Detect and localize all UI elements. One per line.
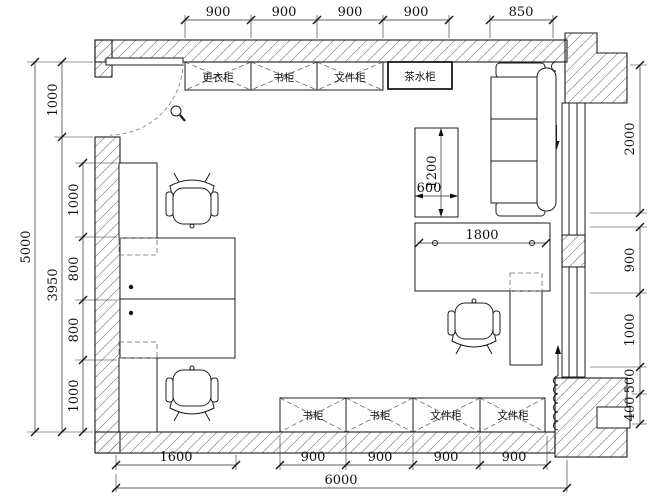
desk-grommet xyxy=(129,285,133,289)
desk-length-dim: 1800 xyxy=(465,228,498,243)
left-desk-cluster xyxy=(119,163,235,432)
dim-top-1: 900 xyxy=(206,5,231,20)
desk-return-cabinet-top xyxy=(119,163,157,238)
dim-left-inner-4: 1000 xyxy=(67,379,82,412)
window-lower xyxy=(562,267,585,377)
floor-plan-canvas: 更衣柜 书柜 文件柜 茶水柜 书柜 书柜 文件柜 文件柜 xyxy=(0,0,667,503)
file-cabinet-2-label: 文件柜 xyxy=(497,409,529,422)
desk-return-cabinet-right xyxy=(510,291,542,365)
dim-left-mid-2: 3950 xyxy=(46,268,61,301)
desk-return-cabinet-bottom xyxy=(119,358,157,432)
office-chair xyxy=(166,173,218,228)
desk-grommet xyxy=(129,311,133,315)
dim-bottom-4: 900 xyxy=(434,450,459,465)
dim-top-right: 850 xyxy=(509,5,534,20)
bookcase-cabinet-top-label: 书柜 xyxy=(274,71,295,84)
side-cabinet: 1200 600 xyxy=(415,128,458,217)
door xyxy=(106,58,185,135)
cabinet-width-dim: 600 xyxy=(417,181,442,196)
window-upper xyxy=(562,103,585,235)
top-cabinet-row: 更衣柜 书柜 文件柜 茶水柜 xyxy=(185,62,452,90)
dim-top-3: 900 xyxy=(338,5,363,20)
bookcase-cabinet-1-label: 书柜 xyxy=(303,409,324,422)
dim-right-2: 1000 xyxy=(623,313,638,346)
desk-lower xyxy=(120,299,235,358)
dim-top-4: 900 xyxy=(404,5,429,20)
dim-right-top: 2000 xyxy=(623,122,638,155)
dim-bottom-3: 900 xyxy=(368,450,393,465)
window-pier xyxy=(562,235,585,267)
door-handle-icon xyxy=(171,106,181,116)
dim-bottom-5: 900 xyxy=(502,450,527,465)
dim-chain-top: 900 900 900 900 850 xyxy=(181,5,557,38)
dim-right-4: 400 xyxy=(623,397,638,422)
top-right-column xyxy=(565,33,627,103)
dim-left-inner-1: 1000 xyxy=(67,183,82,216)
dim-left-total: 5000 xyxy=(19,230,34,263)
file-cabinet-top-label: 文件柜 xyxy=(334,71,366,84)
door-leaf xyxy=(106,58,183,65)
floor-plan: 更衣柜 书柜 文件柜 茶水柜 书柜 书柜 文件柜 文件柜 xyxy=(0,0,667,503)
door-handle-grip xyxy=(180,115,185,121)
dim-bottom-1: 1600 xyxy=(159,450,192,465)
dim-right-3: 500 xyxy=(623,369,638,394)
dim-bottom-2: 900 xyxy=(301,450,326,465)
office-chair xyxy=(448,299,500,354)
dim-left-mid-1: 1000 xyxy=(46,83,61,116)
desk-upper xyxy=(120,238,235,299)
left-wall xyxy=(95,137,120,453)
wardrobe-cabinet-label: 更衣柜 xyxy=(202,71,234,84)
bottom-cabinet-row: 书柜 书柜 文件柜 文件柜 xyxy=(280,398,545,432)
door-swing-arc xyxy=(110,62,183,135)
bookcase-cabinet-2-label: 书柜 xyxy=(370,409,391,422)
office-chair xyxy=(166,366,218,421)
right-desk-cluster: 1800 xyxy=(415,223,550,365)
dim-left-inner-3: 800 xyxy=(67,318,82,343)
dim-left-inner-2: 800 xyxy=(67,257,82,282)
sofa-backrest xyxy=(537,68,556,211)
file-cabinet-1-label: 文件柜 xyxy=(430,409,462,422)
tea-cabinet-label: 茶水柜 xyxy=(404,70,436,83)
curtain-bottom-arrow-icon xyxy=(555,345,561,354)
dim-right-1: 900 xyxy=(623,248,638,273)
sofa xyxy=(491,63,556,216)
dim-chain-right: 2000 900 1000 500 400 xyxy=(590,61,647,428)
dim-bottom-total: 6000 xyxy=(324,473,357,488)
dim-top-2: 900 xyxy=(272,5,297,20)
